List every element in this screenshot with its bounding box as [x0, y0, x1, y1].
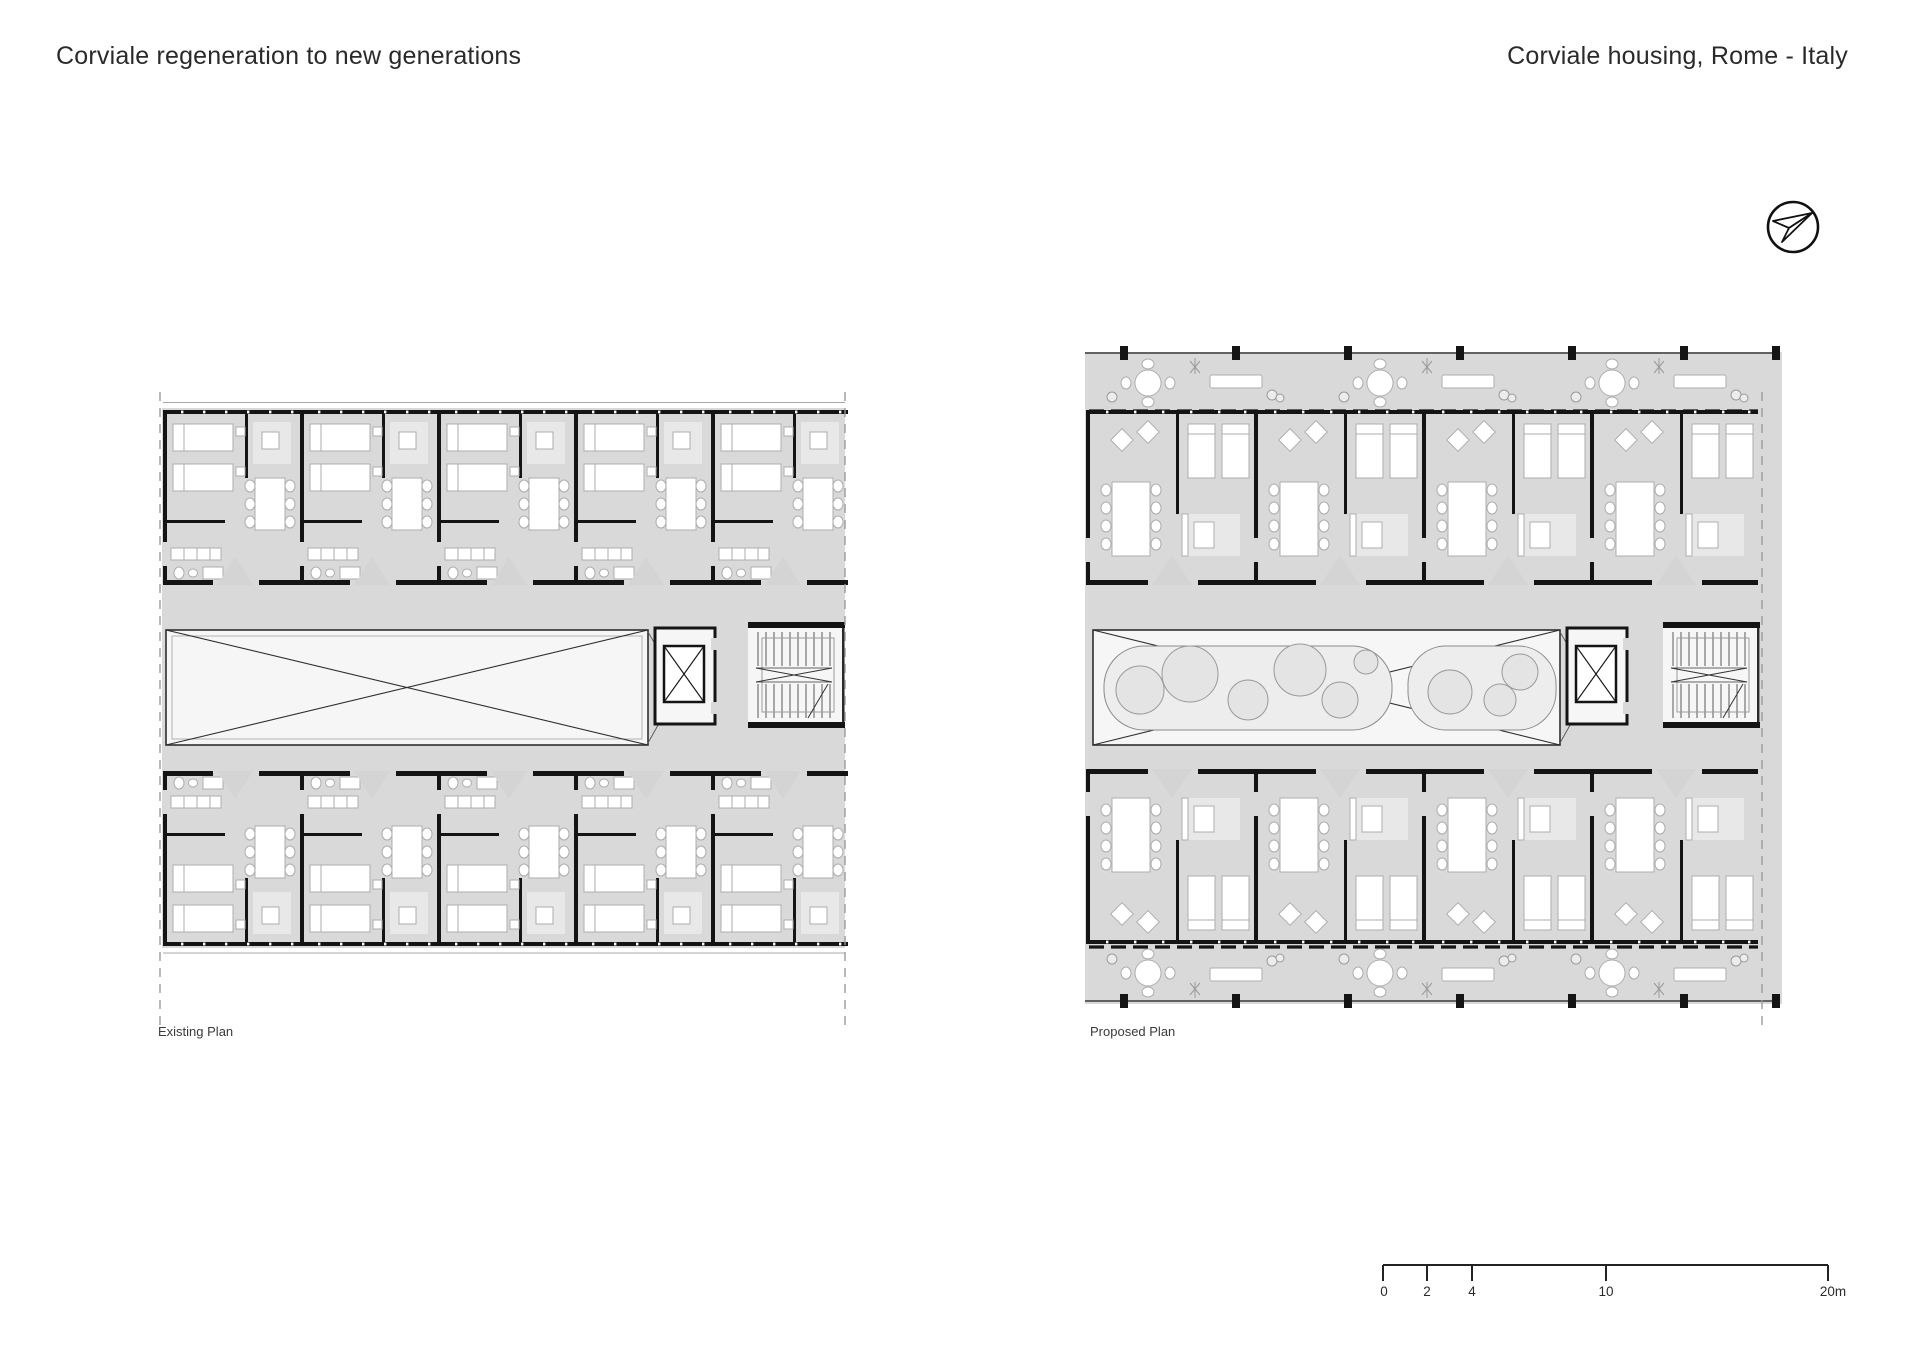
existing-plan	[160, 392, 848, 1032]
floor-plans-drawing	[0, 0, 1920, 1357]
existing-stair-core	[748, 622, 845, 728]
proposed-central-void	[1093, 630, 1574, 745]
proposed-plan-label: Proposed Plan	[1090, 1024, 1175, 1039]
scale-tick-20: 20m	[1820, 1284, 1846, 1299]
scale-bar	[1383, 1265, 1828, 1281]
page-title: Corviale regeneration to new generations	[56, 42, 521, 71]
sheet: Corviale regeneration to new generations…	[0, 0, 1920, 1357]
proposed-elevator-core	[1567, 628, 1631, 724]
proposed-plan	[1085, 346, 1782, 1032]
project-title: Corviale housing, Rome - Italy	[1507, 42, 1848, 71]
scale-tick-0: 0	[1380, 1284, 1388, 1299]
north-arrow-icon	[1764, 196, 1824, 258]
planters	[1104, 644, 1556, 730]
existing-plan-label: Existing Plan	[158, 1024, 233, 1039]
scale-tick-2: 2	[1423, 1284, 1431, 1299]
existing-elevator-core	[655, 628, 719, 724]
scale-tick-10: 10	[1598, 1284, 1613, 1299]
existing-central-void	[166, 630, 662, 745]
proposed-stair-core	[1663, 622, 1760, 728]
scale-tick-4: 4	[1468, 1284, 1476, 1299]
